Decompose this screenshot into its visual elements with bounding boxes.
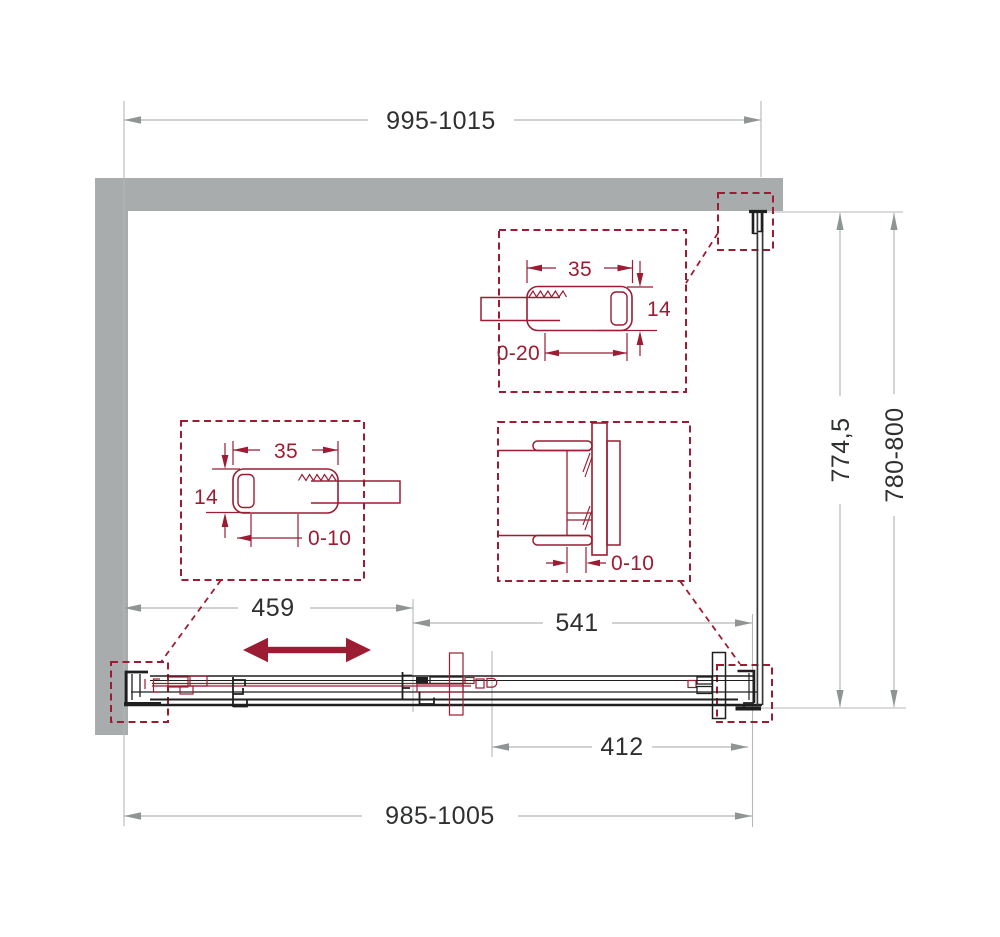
dim-label-depth-inner: 774,5: [827, 417, 855, 482]
leader-detail-left-to-track: [161, 580, 221, 662]
dim-label-fixed-section: 541: [555, 609, 598, 637]
dim-depth-inner: 774,5: [827, 213, 855, 707]
detail-left-width-label: 35: [274, 440, 298, 463]
walls: [95, 178, 783, 735]
dim-label-bottom-width: 985-1005: [385, 802, 495, 830]
door-track: [124, 653, 762, 719]
track-connector-left: [168, 676, 207, 694]
dim-top-width: 995-1015: [124, 107, 761, 135]
detail-right-profile: 0-10: [498, 423, 654, 575]
wall-top: [95, 178, 783, 211]
dim-depth-range: 780-800: [881, 213, 909, 707]
callouts: [111, 193, 773, 722]
dim-fixed-section: 541: [413, 609, 752, 637]
detail-left-adjust-label: 0-10: [308, 527, 351, 550]
track-right-end: [688, 653, 761, 719]
detail-left-profile: 35 14 0-10: [194, 440, 400, 550]
detail-left-height-label: 14: [194, 486, 218, 509]
slide-direction-arrow: [243, 638, 371, 662]
detail-top-profile: 35 14 0-20: [481, 258, 671, 365]
detail-top-width-label: 35: [568, 258, 592, 281]
drawing-canvas: 995-1015 985-1005 459 541 412 774,5 780-…: [0, 0, 1000, 937]
wall-left: [95, 211, 128, 735]
dim-bottom-width: 985-1005: [124, 802, 752, 830]
dim-label-opening: 412: [600, 733, 643, 761]
shower-enclosure-plan: 995-1015 985-1005 459 541 412 774,5 780-…: [0, 0, 1000, 937]
dim-opening: 412: [492, 733, 748, 761]
detail-top-adjust-label: 0-20: [497, 342, 540, 365]
dim-label-door-panel: 459: [251, 594, 294, 622]
detail-top-height-label: 14: [647, 298, 671, 321]
leader-corner-to-detail: [686, 233, 718, 283]
dim-label-top-width: 995-1015: [386, 107, 496, 135]
callout-box-detail-right: [498, 422, 690, 581]
detail-right-adjust-label: 0-10: [611, 552, 654, 575]
fixed-side-panel: [749, 212, 767, 706]
dim-door-panel: 459: [124, 594, 413, 622]
dim-label-depth-range: 780-800: [881, 407, 909, 502]
